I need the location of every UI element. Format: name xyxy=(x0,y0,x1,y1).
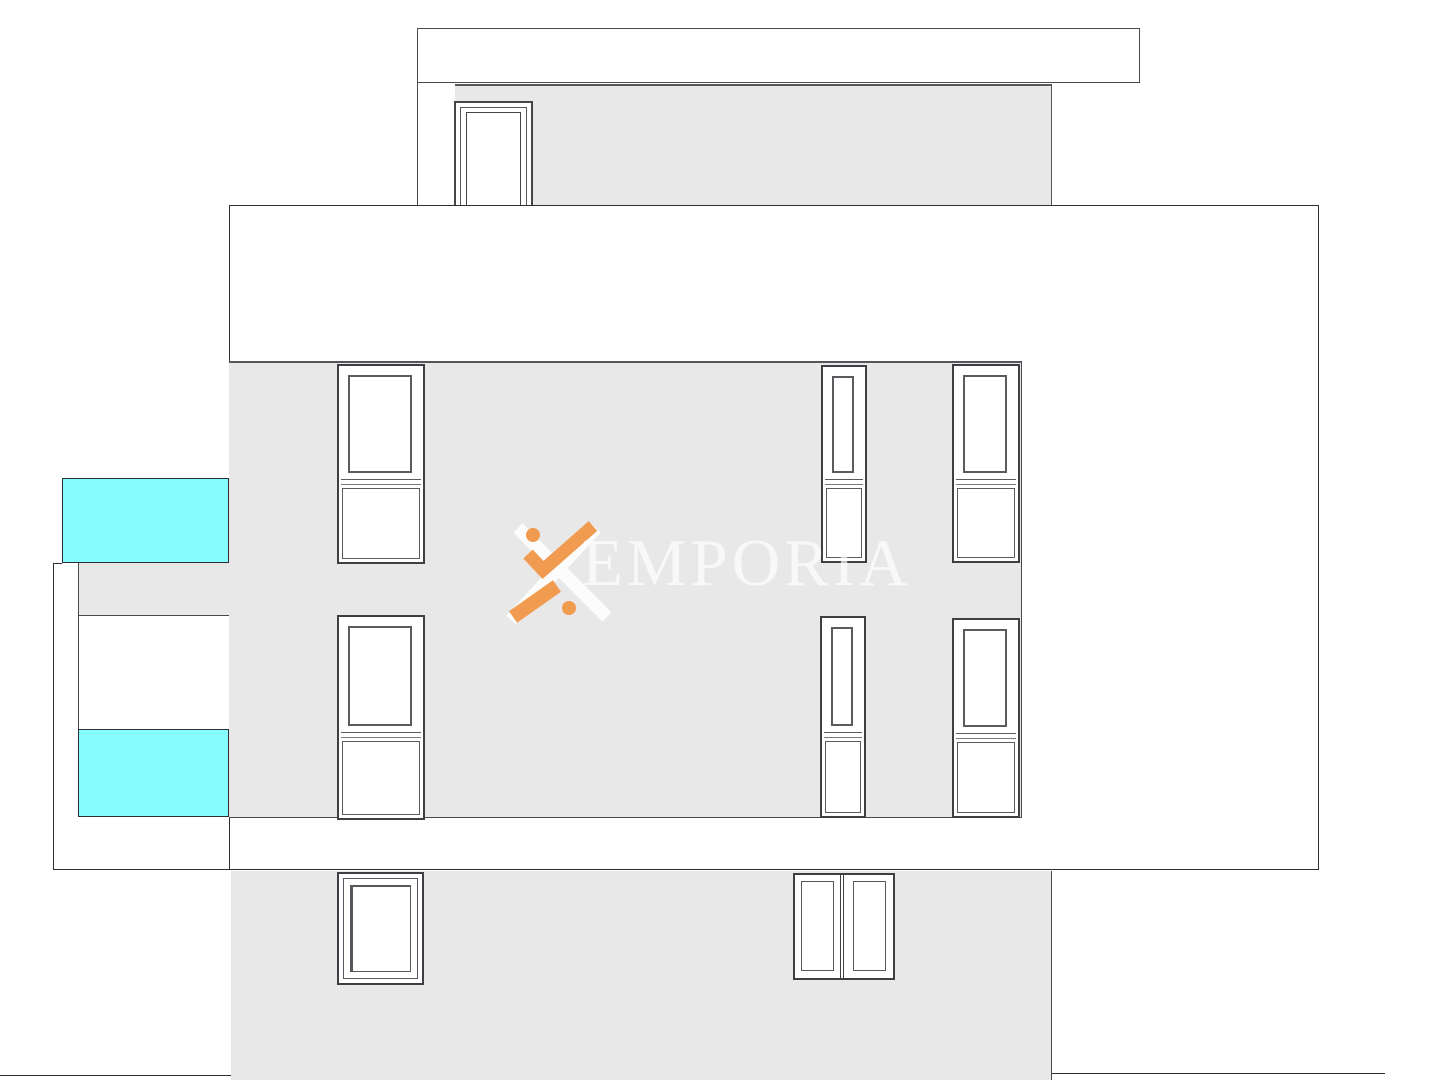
window-divider xyxy=(825,479,863,480)
ground-window-left xyxy=(337,872,424,985)
window-divider xyxy=(956,733,1016,734)
roof-left-edge-line xyxy=(417,83,418,205)
window-divider xyxy=(956,738,1016,739)
annex-top-edge-line xyxy=(53,563,62,564)
window-row2-narrow xyxy=(820,616,866,818)
window-divider xyxy=(341,484,421,485)
window-divider xyxy=(341,732,421,733)
ground-window-double xyxy=(793,873,895,980)
window-glass xyxy=(348,626,412,726)
ground-line-right xyxy=(1052,1073,1385,1074)
window-glass-left xyxy=(801,881,834,971)
window-glass xyxy=(832,376,854,473)
window-glass xyxy=(963,375,1007,473)
annex-bottom-line xyxy=(53,869,230,870)
window-glass xyxy=(963,629,1007,727)
window-glass xyxy=(350,885,411,972)
window-divider xyxy=(824,737,862,738)
window-row2-left xyxy=(337,615,425,820)
window-lower-sash xyxy=(342,488,420,559)
window-divider xyxy=(341,737,421,738)
pool-panel-upper xyxy=(62,478,229,563)
elevation-drawing: EMPORIA xyxy=(0,0,1433,1080)
window-divider xyxy=(824,732,862,733)
window-lower-sash xyxy=(957,488,1015,558)
window-row1-right xyxy=(952,364,1020,563)
annex-white-band xyxy=(78,616,229,729)
ground-line-left xyxy=(0,1075,231,1076)
window-divider xyxy=(956,484,1016,485)
door-slab xyxy=(466,112,521,205)
window-lower-sash xyxy=(342,741,420,815)
window-divider xyxy=(956,479,1016,480)
window-lower-sash xyxy=(957,742,1015,813)
window-divider xyxy=(341,479,421,480)
window-mullion xyxy=(840,875,844,978)
roof-parapet xyxy=(417,28,1140,83)
window-glass xyxy=(831,627,853,726)
window-row1-left xyxy=(337,364,425,564)
window-divider xyxy=(825,484,863,485)
pool-panel-lower xyxy=(78,729,229,817)
window-lower-sash xyxy=(825,741,861,813)
window-glass-right xyxy=(853,881,886,971)
window-glass xyxy=(348,375,412,473)
penthouse-wall xyxy=(455,84,1052,205)
emporia-watermark-text: EMPORIA xyxy=(582,527,912,599)
annex-wall-band xyxy=(78,563,229,616)
annex-left-edge-line xyxy=(53,563,54,869)
window-row2-right xyxy=(952,618,1020,818)
penthouse-door xyxy=(454,101,533,205)
